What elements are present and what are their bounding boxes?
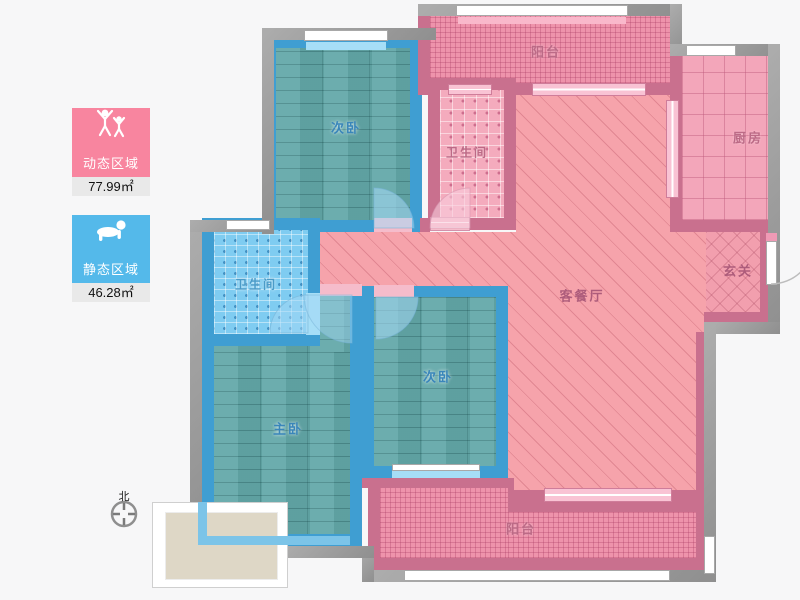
people-jumping-icon — [90, 108, 132, 140]
room-label-balcony-top: 阳台 — [531, 42, 561, 61]
room-balcony-bottom-floor — [380, 488, 508, 558]
entry-door-frame — [766, 233, 777, 241]
legend-dynamic-label: 动态区域 — [72, 153, 150, 172]
wall — [696, 332, 704, 502]
wall — [362, 478, 508, 488]
legend-static-value: 46.28㎡ — [72, 283, 150, 302]
room-label-foyer: 玄关 — [723, 261, 753, 280]
window-sill — [392, 471, 480, 478]
pass-through-window — [448, 84, 492, 95]
window — [686, 45, 736, 56]
legend-dynamic-card: 动态区域 77.99㎡ — [72, 101, 150, 196]
window — [704, 536, 715, 574]
wall — [704, 312, 768, 322]
room-label-bedroom-top: 次卧 — [331, 118, 361, 137]
door-opening — [320, 284, 362, 296]
door-opening — [374, 218, 412, 232]
window — [226, 220, 270, 230]
outer-wall — [284, 546, 374, 558]
master-nook-floor — [320, 295, 350, 352]
room-label-master: 主卧 — [273, 419, 303, 438]
compass-icon — [112, 502, 136, 526]
outer-wall — [768, 44, 780, 334]
door-opening — [306, 293, 320, 335]
room-label-bath-mid: 卫生间 — [235, 276, 277, 293]
window — [456, 5, 628, 16]
window-sill — [458, 17, 626, 24]
door-opening-steps — [430, 217, 470, 231]
wall — [420, 218, 430, 232]
window — [404, 570, 670, 581]
wall — [198, 536, 350, 545]
room-label-bedroom-bottom: 次卧 — [423, 367, 453, 386]
baby-crawling-icon — [90, 215, 132, 245]
door-opening — [374, 285, 414, 297]
wall — [380, 558, 704, 570]
floor-plan-viewer: 北 次卧 卫生间 阳台 厨房 客餐厅 玄关 卫生间 主卧 次卧 阳台 动态区域 — [0, 0, 800, 600]
bay-window — [152, 502, 288, 588]
sliding-door-kitchen — [666, 100, 679, 198]
window — [304, 30, 388, 41]
wall — [508, 502, 704, 512]
room-label-balcony-bottom: 阳台 — [506, 519, 536, 538]
window-sill — [306, 42, 386, 50]
north-label: 北 — [119, 488, 130, 504]
room-balcony-bottom-floor — [508, 512, 696, 558]
legend-static-label: 静态区域 — [72, 259, 150, 278]
outer-wall — [714, 322, 780, 334]
outer-wall — [262, 28, 274, 234]
wall — [696, 512, 704, 558]
bay-window-sill — [165, 512, 278, 580]
room-label-bath-top: 卫生间 — [446, 144, 488, 161]
sliding-door-balcony-top — [532, 83, 646, 96]
window — [392, 464, 480, 471]
legend-static-card: 静态区域 46.28㎡ — [72, 208, 150, 302]
room-label-kitchen: 厨房 — [733, 128, 763, 147]
room-label-living: 客餐厅 — [559, 286, 604, 305]
legend-dynamic-value: 77.99㎡ — [72, 177, 150, 196]
sliding-door-balcony-bottom — [544, 488, 672, 502]
entry-door — [766, 241, 777, 285]
